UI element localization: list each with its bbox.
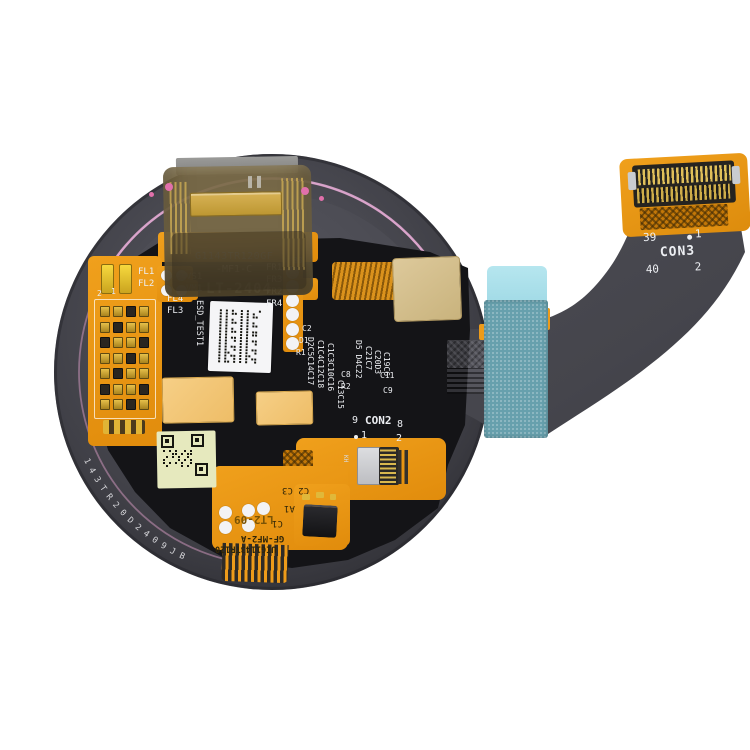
con3-label: CON3	[660, 244, 696, 259]
con3-labels: 39 1 CON3 40 2	[619, 221, 750, 288]
flex-mesh-texture	[447, 340, 487, 368]
refcol-b2: C21C7	[364, 346, 372, 370]
tan-pad-b	[256, 391, 314, 426]
r1-label: R1	[296, 349, 306, 357]
bottomflex-gf-code: GF-MF2-A	[241, 533, 284, 542]
con2-pin1-label: 1	[361, 431, 367, 441]
refcol-b1: D5 D4C22	[354, 340, 362, 379]
gold-square-pad	[392, 256, 462, 322]
con2-pin2-label: 2	[396, 434, 402, 444]
refcol-a3: C1C3C10C16	[326, 343, 334, 391]
via-dot	[219, 521, 232, 534]
pink-solder-dot	[301, 187, 309, 195]
bottomflex-c2c3-label: C2 C3	[282, 485, 309, 494]
esd-test-label: ESD_TEST1	[195, 300, 204, 346]
bottomflex-a1-label: A1	[284, 503, 295, 512]
teal-patch-textured	[484, 300, 548, 438]
con3-pin40-label: 40	[645, 263, 659, 275]
qr-finder-br	[195, 463, 208, 476]
fl2-label: FL2	[138, 280, 154, 289]
con2-label: CON2	[365, 415, 392, 426]
fl1-label: FL1	[138, 268, 154, 277]
bottomflex-chip-pad	[316, 492, 324, 498]
bottomflex-chip-pad	[302, 494, 310, 500]
product-photo: 143TR20D2409JB G1143TR120GF -M	[0, 0, 750, 750]
via-dot	[286, 308, 299, 321]
con3-pin1-dot	[687, 235, 692, 240]
con3-pin1-label: 1	[695, 228, 702, 239]
fr4-label: FR4	[266, 300, 282, 309]
con2-connector-base	[357, 447, 381, 485]
c2-label: C2	[302, 325, 312, 333]
qr-noise	[163, 450, 193, 468]
pad2-label: 2	[97, 290, 102, 298]
bottomflex-stamp: LT2-09	[234, 514, 274, 525]
c9-label: C9	[383, 387, 393, 395]
pink-solder-dot	[319, 196, 324, 201]
c8-label: C8	[341, 371, 351, 379]
refcol-a2: C1C4C12C18	[316, 340, 324, 388]
c11-label: C11	[380, 372, 394, 380]
con2-kh-marking: KH	[342, 455, 348, 462]
lcd-connector-dark-zone	[172, 231, 307, 291]
qr-finder-tr	[191, 434, 204, 447]
tan-pad-a	[162, 376, 235, 423]
via-dot	[286, 323, 299, 336]
qr-finder-tl	[161, 435, 174, 448]
bottomflex-chip	[302, 504, 338, 538]
con3-connector-cap-left	[628, 172, 637, 190]
con2-pin9-label: 9	[352, 416, 358, 426]
gold-bits	[103, 420, 145, 434]
lcd-connector-mark	[248, 176, 262, 188]
con3-pin2-label: 2	[694, 261, 701, 272]
refcol-a1: D2C5C14C17	[306, 337, 314, 385]
r2-label: R2	[341, 383, 351, 391]
via-dot	[286, 294, 299, 307]
datamatrix-pattern	[218, 309, 262, 364]
pad1-label: 1	[111, 288, 116, 296]
bottomflex-chip-pad	[330, 494, 336, 500]
flex-ridge-texture	[447, 368, 487, 394]
con3-connector-cap-right	[732, 166, 741, 184]
pink-solder-dot	[165, 183, 173, 191]
con2-pin1-dot	[354, 435, 358, 439]
con2-connector-pins	[380, 449, 396, 483]
lcd-connector-gold-bar	[190, 191, 282, 217]
pink-solder-dot	[149, 192, 154, 197]
con2-pin8-label: 8	[397, 420, 403, 430]
con2-connector-teeth	[398, 450, 409, 484]
con3-pin39-label: 39	[643, 231, 657, 243]
via-dot	[219, 506, 232, 519]
fl3-label: FL3	[167, 307, 183, 316]
battery-pad-1	[119, 264, 132, 294]
component-grid	[100, 306, 150, 414]
flex-trace-to-pad	[332, 262, 398, 300]
bottomflex-uig-code: UIG1143TR120	[215, 544, 276, 553]
